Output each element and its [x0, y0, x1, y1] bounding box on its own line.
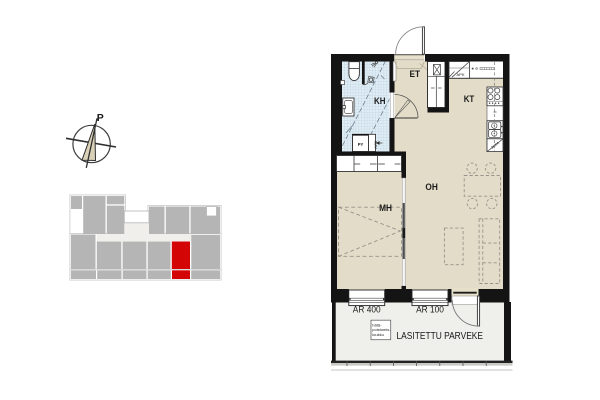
svg-text:luukku: luukku — [372, 332, 384, 337]
svg-text:ET: ET — [410, 69, 421, 79]
svg-text:APK: APK — [456, 72, 464, 77]
svg-text:KUIV: KUIV — [373, 141, 377, 150]
svg-text:LASITETTU PARVEKE: LASITETTU PARVEKE — [397, 331, 484, 342]
svg-text:AR 100: AR 100 — [416, 304, 444, 314]
svg-text:MH: MH — [379, 203, 392, 213]
svg-text:P: P — [97, 112, 104, 124]
svg-text:OH: OH — [425, 182, 437, 192]
svg-text:AR 400: AR 400 — [353, 304, 381, 314]
svg-text:KH: KH — [374, 96, 386, 106]
svg-text:KT: KT — [464, 94, 475, 104]
svg-text:PY: PY — [358, 142, 364, 147]
